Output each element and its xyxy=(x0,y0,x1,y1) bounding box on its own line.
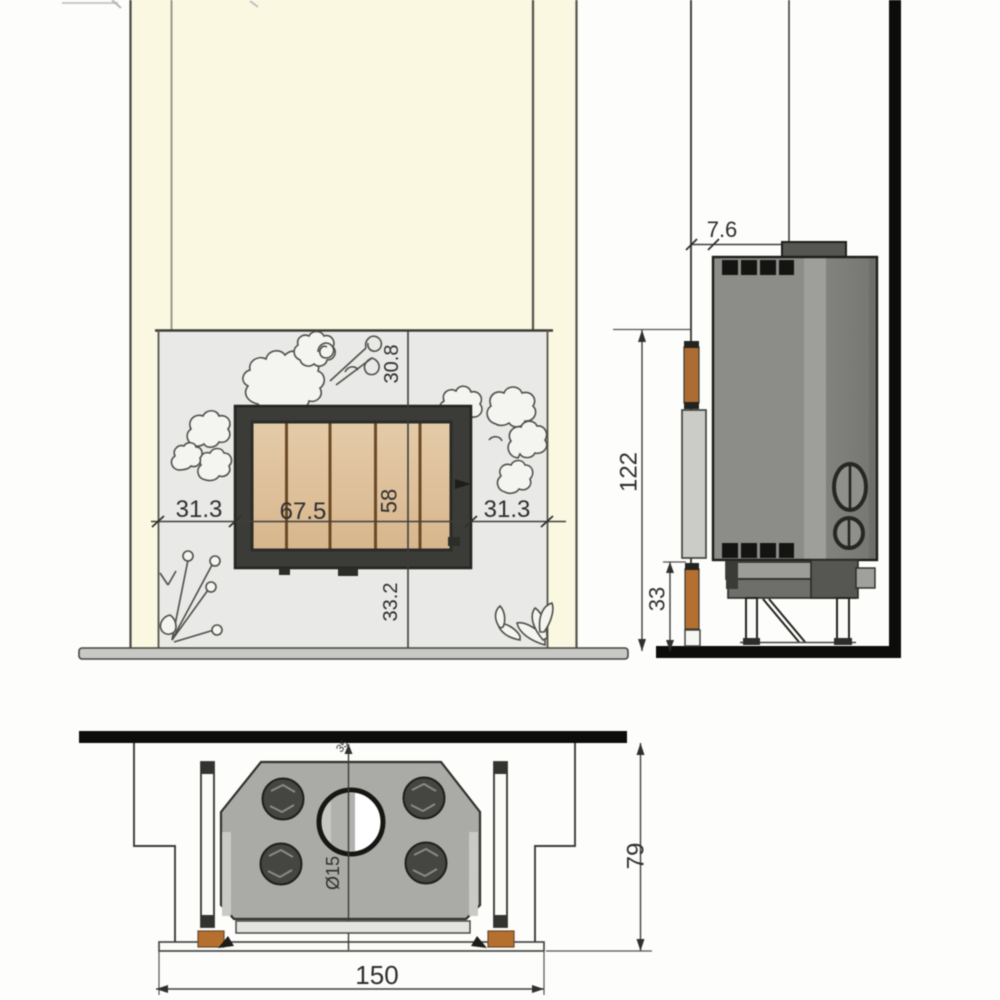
svg-text:7.6: 7.6 xyxy=(707,217,738,242)
svg-text:150: 150 xyxy=(355,960,398,990)
svg-text:33: 33 xyxy=(645,587,670,611)
svg-text:122: 122 xyxy=(616,452,643,492)
svg-text:67.5: 67.5 xyxy=(280,498,327,525)
svg-text:31.3: 31.3 xyxy=(484,496,531,523)
svg-text:58: 58 xyxy=(377,489,402,513)
svg-text:Ø15: Ø15 xyxy=(323,856,343,890)
svg-text:31.3: 31.3 xyxy=(176,496,223,523)
svg-text:79: 79 xyxy=(623,843,650,870)
svg-text:33.2: 33.2 xyxy=(380,583,402,622)
svg-text:30.8: 30.8 xyxy=(381,345,403,384)
